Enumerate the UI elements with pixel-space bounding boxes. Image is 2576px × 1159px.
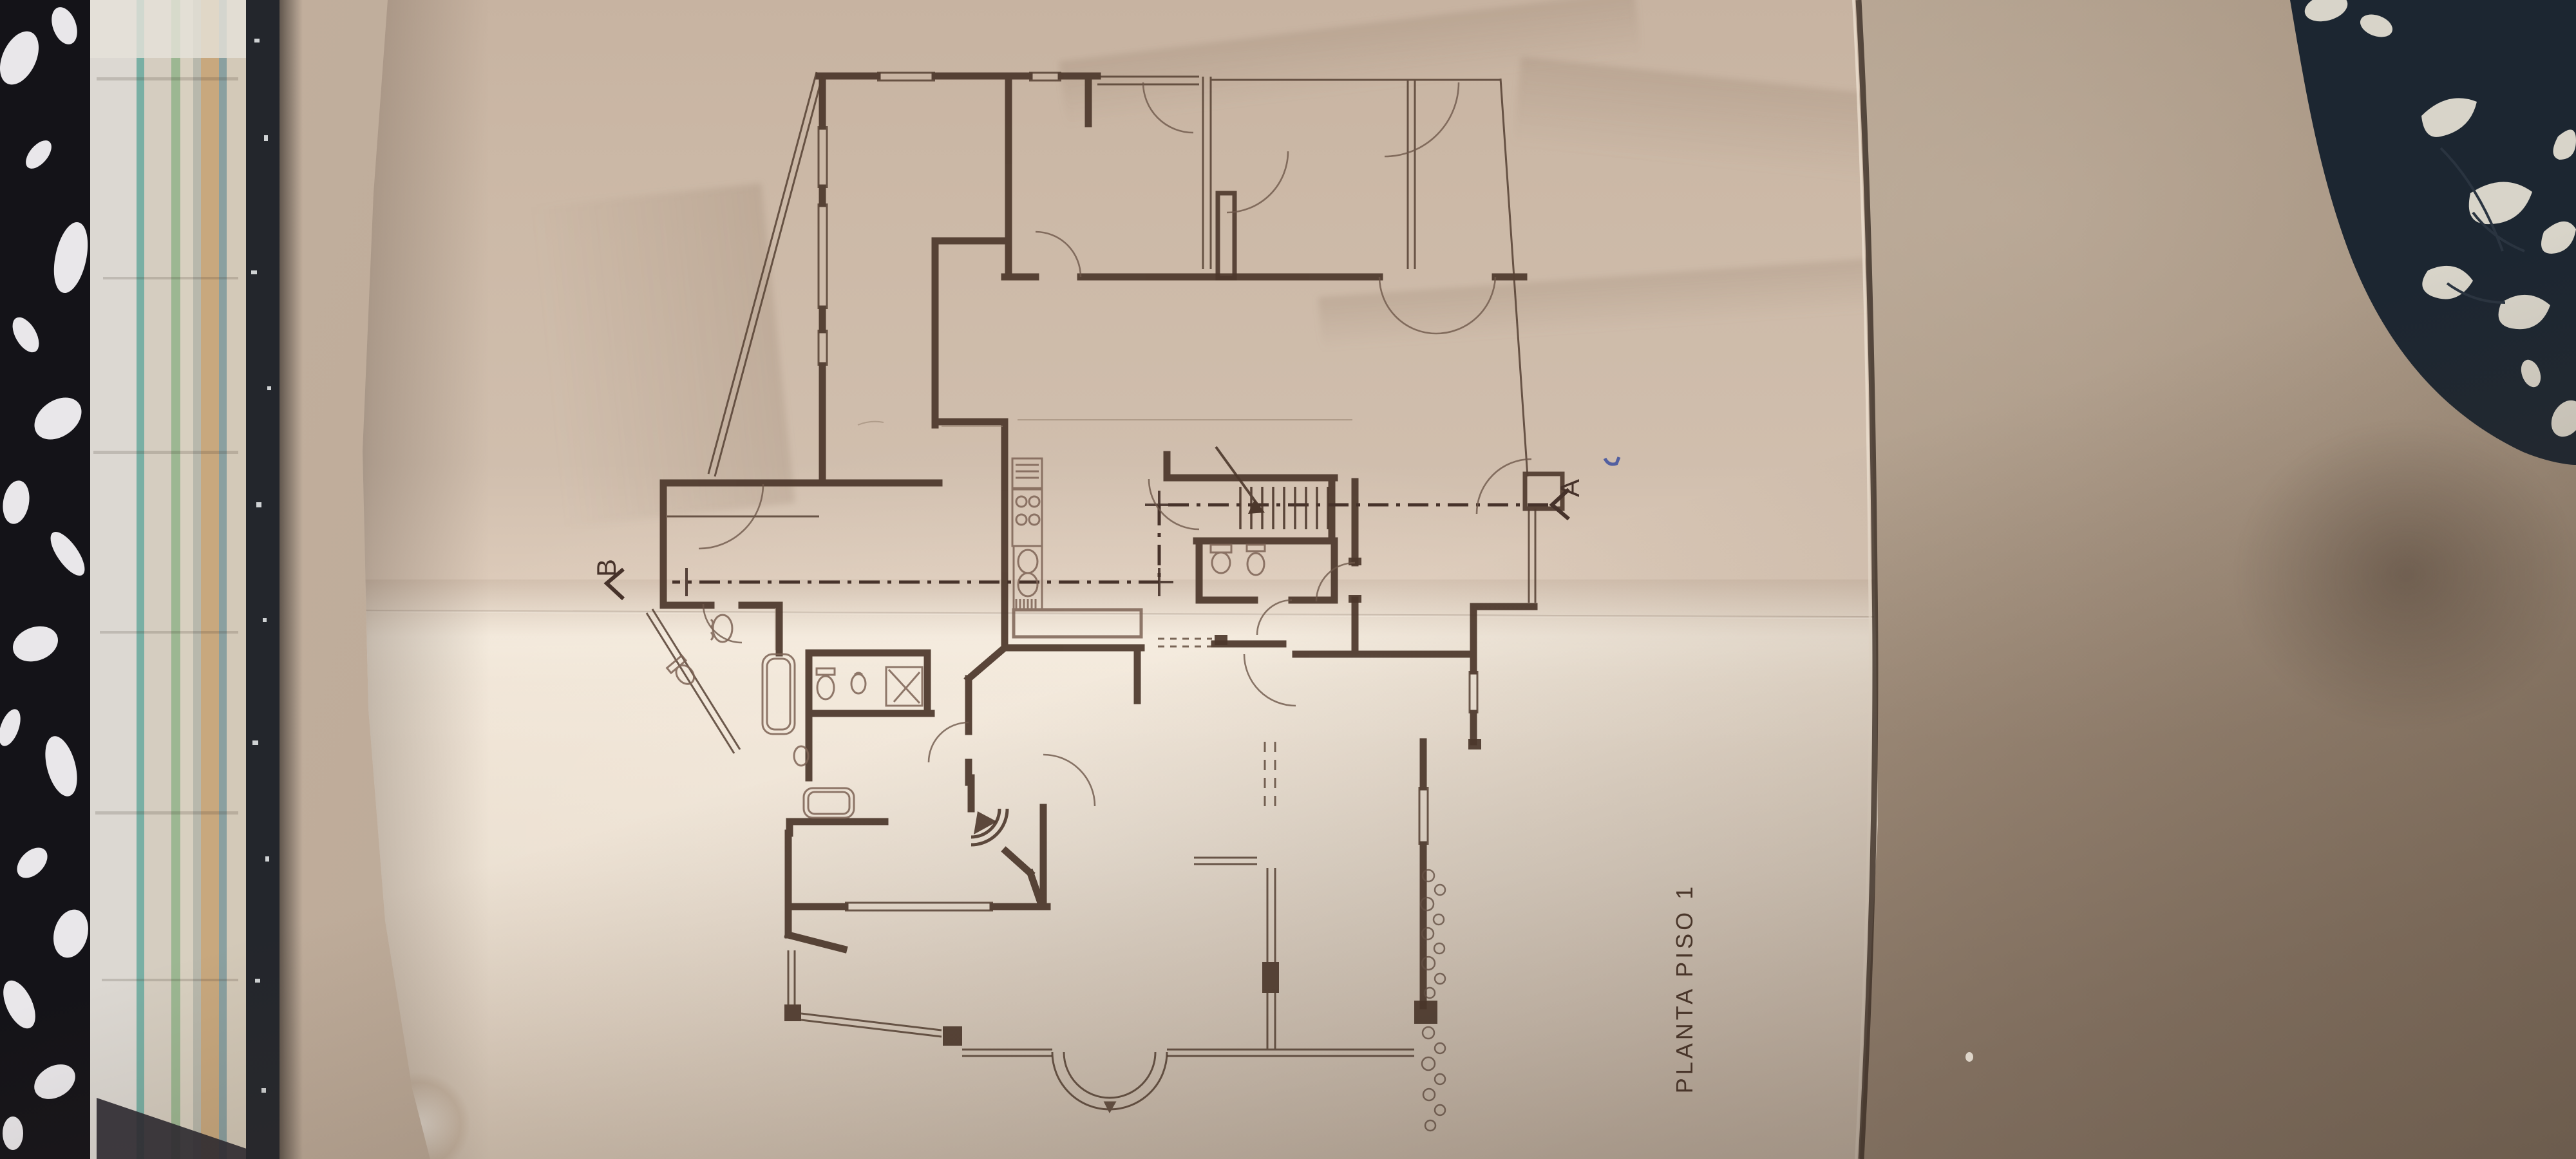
chair-fabric [2290,0,2576,465]
wall-speck [1965,1052,1973,1062]
photo-of-floor-plan-on-desk: A B [0,0,2576,1159]
chair-back [0,0,2576,1159]
